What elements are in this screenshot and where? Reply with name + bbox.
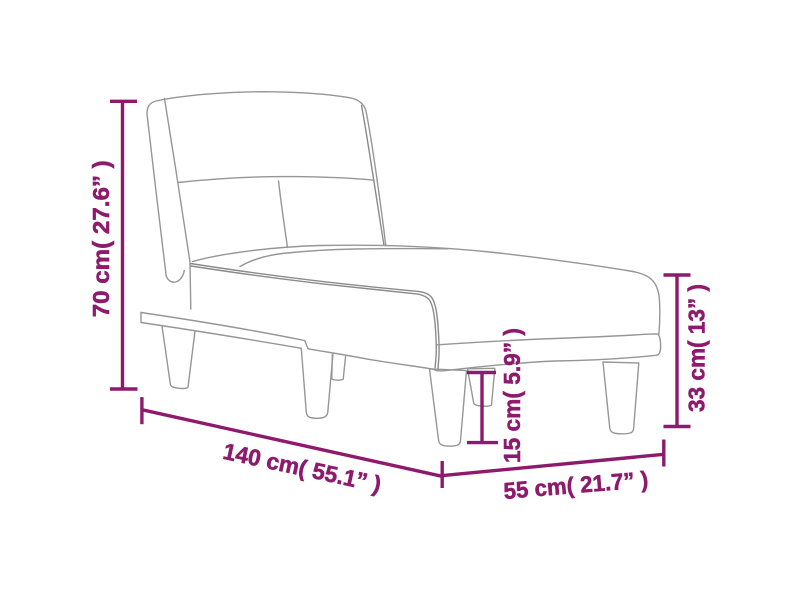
svg-text:15 cm( 5.9” ): 15 cm( 5.9” ) (499, 328, 525, 463)
svg-text:70 cm( 27.6” ): 70 cm( 27.6” ) (88, 160, 114, 317)
svg-text:55 cm( 21.7” ): 55 cm( 21.7” ) (503, 466, 650, 504)
svg-text:33 cm( 13” ): 33 cm( 13” ) (684, 284, 710, 412)
